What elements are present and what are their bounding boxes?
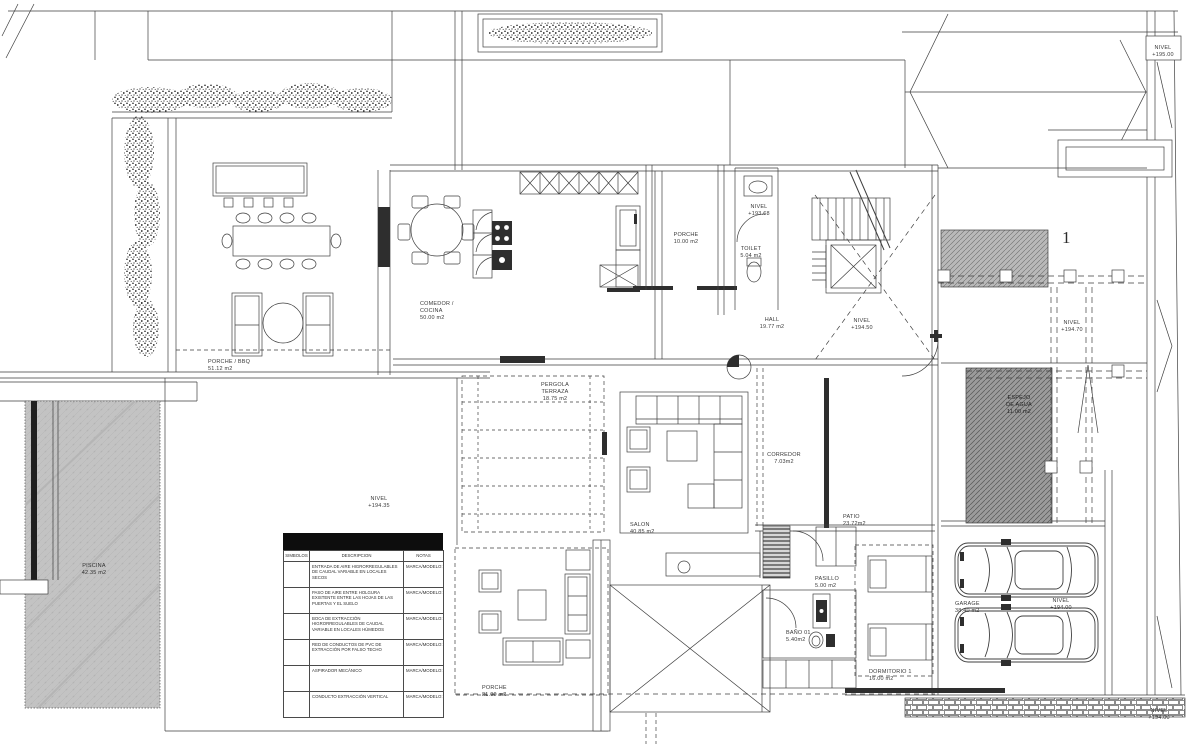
room-label-porche-bbq: PORCHE / BBQ51.12 m2 <box>208 352 250 380</box>
legend-desc-cell: CONDUCTO EXTRACCIÓN VERTICAL <box>310 691 404 717</box>
legend-notes-cell: MARCA/MODELO: <box>404 613 444 639</box>
stair-number-annotation: 1 <box>1062 228 1071 248</box>
room-label-patio: PATIO23.72m2 <box>843 507 866 535</box>
level-label-194-70: NIVEL+194.70 <box>1053 313 1091 341</box>
level-label-194-00-bottom: NIVEL+194.00 <box>1140 701 1178 729</box>
legend-desc-cell: RED DE CONDUCTOS DE PVC DE EXTRACCIÓN PO… <box>310 639 404 665</box>
level-label-193-68: NIVEL+193.68 <box>740 197 778 225</box>
legend-symbol-cell <box>284 613 310 639</box>
legend-symbol-cell <box>284 639 310 665</box>
legend-notes-cell: MARCA/MODELO: <box>404 587 444 613</box>
room-label-comedor-cocina: COMEDOR / COCINA50.00 m2 <box>420 294 454 328</box>
room-label-hall: HALL19.77 m2 <box>750 310 794 338</box>
room-label-garage: GARAGE38.40 m2 <box>955 594 980 622</box>
room-label-toilet: TOILET5.04 m2 <box>734 239 768 267</box>
legend-row: ENTRADA DE AIRE HIGRORREGULABLES DE CAUD… <box>284 561 444 587</box>
legend-row: RED DE CONDUCTOS DE PVC DE EXTRACCIÓN PO… <box>284 639 444 665</box>
room-label-dormitorio-1: DORMITORIO 116.00 m2 <box>869 662 912 690</box>
level-label-195-00: NIVEL+195.00 <box>1145 38 1181 66</box>
legend-row: CONDUCTO EXTRACCIÓN VERTICAL MARCA/MODEL… <box>284 691 444 717</box>
legend-row: PASO DE AIRE ENTRE HOLGURA EXISTENTE ENT… <box>284 587 444 613</box>
floorplan-linework <box>0 0 1200 744</box>
room-label-corredor: CORREDOR7.03m2 <box>760 445 808 473</box>
level-label-194-00-garage: NIVEL+194.00 <box>1042 591 1080 619</box>
legend-notes-cell: MARCA/MODELO: <box>404 665 444 691</box>
level-label-194-50: NIVEL+194.50 <box>843 311 881 339</box>
room-label-pergola-terraza: PERGOLA TERRAZA18.75 m2 <box>533 375 577 409</box>
legend-desc-cell: BOCA DE EXTRACCIÓN HIGRORREGULABLES DE C… <box>310 613 404 639</box>
legend-table: SIMBOLOS DESCRIPCION NOTAS ENTRADA DE AI… <box>283 533 443 718</box>
kitchen-dining <box>378 170 640 375</box>
room-label-bano-01: BAÑO 015.40m2 <box>786 623 811 651</box>
legend-header-row: SIMBOLOS DESCRIPCION NOTAS <box>284 551 444 562</box>
stairs-and-elevator <box>812 170 942 376</box>
legend-row: ASPIRADOR MECÁNICO MARCA/MODELO: <box>284 665 444 691</box>
legend-col-simbolos: SIMBOLOS <box>284 551 310 562</box>
level-label-194-35: NIVEL+194.35 <box>360 489 398 517</box>
room-label-espejo-de-agua: ESPEJO DE AGUA11.00 m2 <box>996 388 1042 422</box>
room-label-porche-10: PORCHE10.00 m2 <box>664 225 708 253</box>
legend-header-bar <box>283 533 443 550</box>
room-label-porche-21: PORCHE21.00 m2 <box>482 678 507 706</box>
room-label-salon: SALON40.85 m2 <box>630 515 655 543</box>
legend-symbol-cell <box>284 587 310 613</box>
room-label-pasillo: PASILLO5.00 m2 <box>815 569 839 597</box>
legend-notes-cell: MARCA/MODELO: <box>404 639 444 665</box>
planting-icon <box>112 22 652 357</box>
floorplan-canvas: PORCHE / BBQ51.12 m2 COMEDOR / COCINA50.… <box>0 0 1200 744</box>
legend-symbol-cell <box>284 691 310 717</box>
legend-symbol-cell <box>284 665 310 691</box>
room-label-piscina: PISCINA42.35 m2 <box>70 556 118 584</box>
legend-notes-cell: MARCA/MODELO: <box>404 691 444 717</box>
courtyard-water <box>938 230 1147 523</box>
legend-symbol-cell <box>284 561 310 587</box>
south-porch-void <box>455 540 935 744</box>
legend-col-notas: NOTAS <box>404 551 444 562</box>
legend-desc-cell: ASPIRADOR MECÁNICO <box>310 665 404 691</box>
legend-row: BOCA DE EXTRACCIÓN HIGRORREGULABLES DE C… <box>284 613 444 639</box>
legend-desc-cell: ENTRADA DE AIRE HIGRORREGULABLES DE CAUD… <box>310 561 404 587</box>
legend-col-descripcion: DESCRIPCION <box>310 551 404 562</box>
legend-desc-cell: PASO DE AIRE ENTRE HOLGURA EXISTENTE ENT… <box>310 587 404 613</box>
pool <box>0 382 197 708</box>
legend-notes-cell: MARCA/MODELO: <box>404 561 444 587</box>
